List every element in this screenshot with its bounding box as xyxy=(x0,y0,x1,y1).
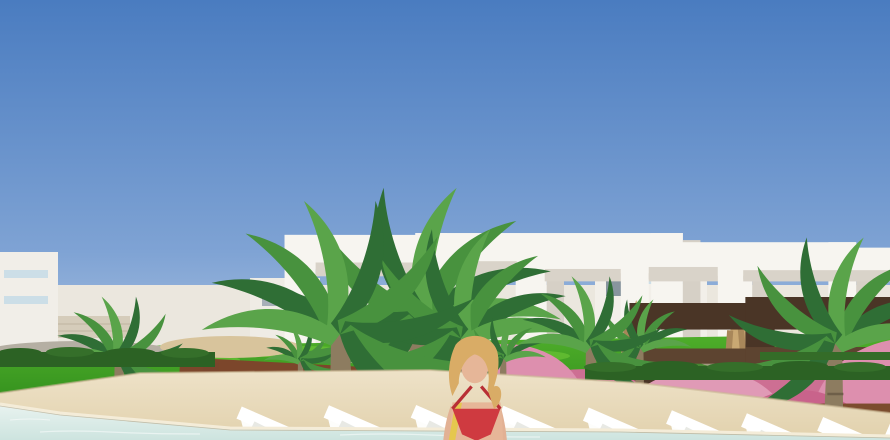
render-canvas xyxy=(0,0,890,440)
scene-resort-render: Sunny 3D architectural rendering of a wh… xyxy=(0,0,890,440)
